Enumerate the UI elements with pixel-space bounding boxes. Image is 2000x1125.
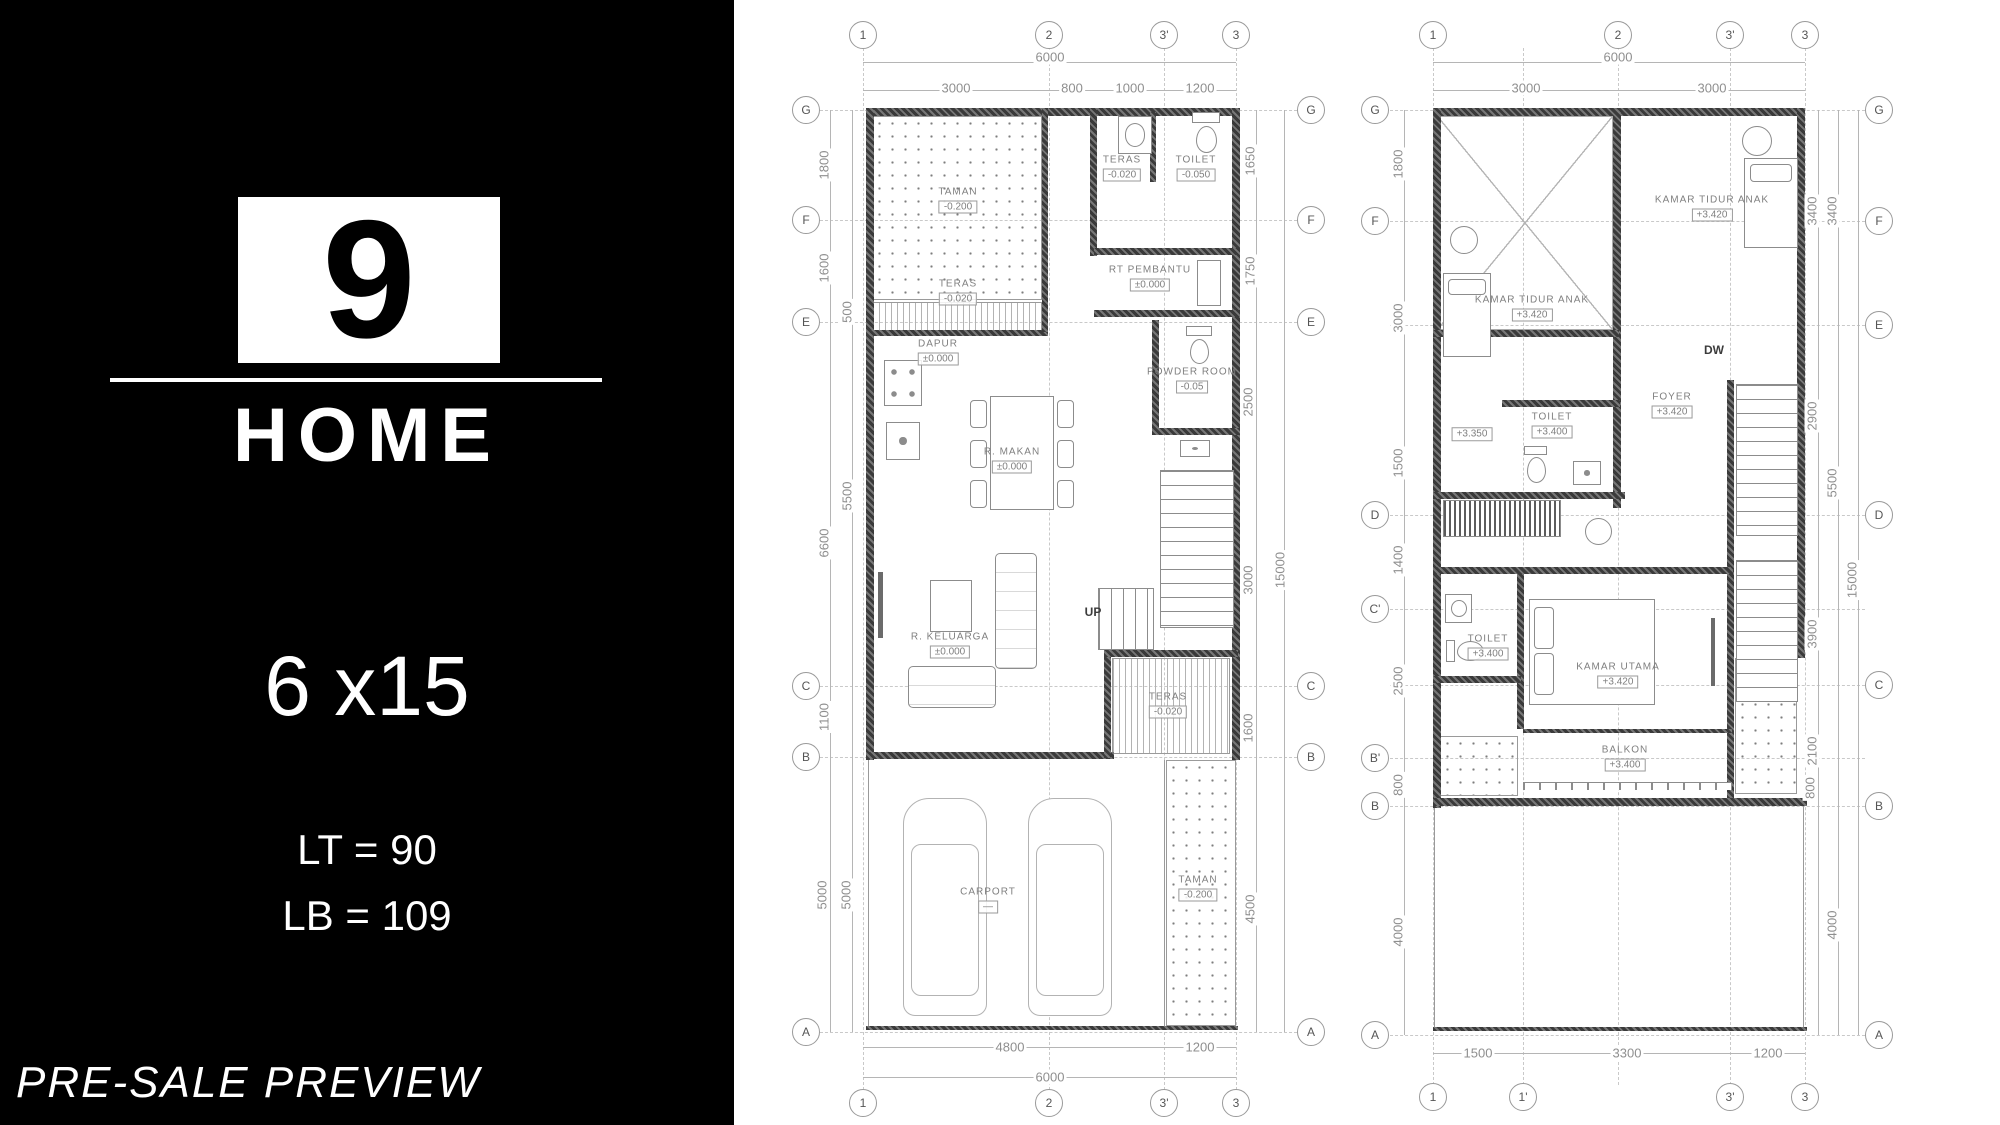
room-level-value: -0.200	[1179, 888, 1217, 902]
grid-bubble: 3'	[1150, 21, 1178, 49]
wall	[1104, 650, 1238, 657]
grid-bubble: A	[1297, 1018, 1325, 1046]
wall	[1042, 108, 1048, 332]
room-level-value: -0.020	[1103, 168, 1141, 182]
room-label: TAMAN-0.200	[938, 187, 977, 214]
dimension-text: 15000	[1273, 550, 1288, 590]
grid-bubble: F	[792, 206, 820, 234]
edge-line	[868, 760, 869, 1028]
dimension-text: 6600	[817, 527, 832, 560]
dimension-text: 800	[1059, 81, 1085, 96]
circle-symbol	[1742, 126, 1772, 156]
dimension-text: 1600	[1241, 712, 1256, 745]
dimension-text: 4000	[1825, 909, 1840, 942]
grid-bubble: D	[1361, 501, 1389, 529]
dimension-text: 5500	[1825, 467, 1840, 500]
grid-bubble: C	[792, 672, 820, 700]
room-name: DAPUR	[918, 339, 959, 351]
grid-bubble: 1	[1419, 21, 1447, 49]
room-level-value: +3.350	[1452, 427, 1493, 441]
presale-preview-text: PRE-SALE PREVIEW	[16, 1058, 481, 1108]
room-level-value: —	[978, 900, 998, 914]
room-name: RT PEMBANTU	[1109, 265, 1191, 277]
dimension-text: 15000	[1845, 560, 1860, 600]
room-label: CARPORT—	[960, 887, 1016, 914]
dimension-text: 6000	[1034, 1070, 1067, 1085]
grid-bubble: E	[792, 308, 820, 336]
dimension-line	[1838, 110, 1839, 1035]
room-level-value: +3.420	[1598, 675, 1639, 689]
dimension-text: 1400	[1391, 544, 1406, 577]
room-level-value: -0.050	[1177, 168, 1215, 182]
grid-bubble: E	[1865, 311, 1893, 339]
edge-line	[1434, 806, 1435, 1027]
room-label: TERAS-0.020	[939, 279, 977, 306]
chair-symbol	[970, 400, 987, 428]
room-name: FOYER	[1652, 392, 1693, 404]
grid-bubble: B	[1297, 743, 1325, 771]
room-level-value: ±0.000	[918, 352, 959, 366]
annotation-text: DW	[1704, 343, 1724, 357]
tv-symbol	[1711, 618, 1715, 686]
grid-bubble: B	[1361, 792, 1389, 820]
room-name: TERAS	[1103, 155, 1141, 167]
toilet-tank-symbol	[1192, 112, 1220, 123]
grid-bubble: 3'	[1716, 1083, 1744, 1111]
wall	[866, 1026, 1238, 1030]
room-label: BALKON+3.400	[1602, 745, 1649, 772]
dimension-text: 2900	[1805, 400, 1820, 433]
table-symbol	[930, 580, 972, 632]
grid-bubble: A	[792, 1018, 820, 1046]
dimension-text: 2500	[1391, 665, 1406, 698]
sofa-symbol	[995, 553, 1037, 669]
sofa-symbol	[908, 666, 996, 708]
grid-line	[863, 48, 864, 1090]
grid-bubble: 1	[1419, 1083, 1447, 1111]
grid-bubble: B	[792, 743, 820, 771]
grid-bubble: 1	[849, 21, 877, 49]
grid-bubble: 3'	[1150, 1089, 1178, 1117]
wall	[1094, 310, 1240, 317]
room-label: +3.350	[1452, 425, 1493, 441]
dimension-text: 3000	[1241, 564, 1256, 597]
room-label: KAMAR UTAMA+3.420	[1576, 662, 1660, 689]
grid-bubble: 3	[1791, 21, 1819, 49]
room-label: R. KELUARGA±0.000	[911, 632, 989, 659]
dimension-text: 1100	[817, 701, 832, 733]
dimension-text: 1650	[1243, 145, 1258, 178]
dimension-text: 1200	[1184, 81, 1217, 96]
bed-symbol	[1197, 260, 1221, 306]
dimension-text: 3000	[940, 81, 973, 96]
pillow-symbol	[1534, 653, 1554, 695]
lot-size-text: 6 x15	[0, 638, 734, 735]
room-label: FOYER+3.420	[1652, 392, 1693, 419]
dimension-line	[863, 1047, 1236, 1048]
room-name: TOILET	[1468, 634, 1509, 646]
wall	[1433, 676, 1521, 683]
dimension-text: 3900	[1805, 618, 1820, 651]
room-level-value: ±0.000	[930, 645, 971, 659]
room-level-value: +3.420	[1692, 208, 1733, 222]
dimension-text: 2100	[1805, 735, 1820, 768]
dimension-text: 5000	[815, 879, 830, 912]
room-level-value: -0.200	[939, 200, 977, 214]
grid-bubble: G	[792, 96, 820, 124]
pillow-symbol	[1750, 164, 1792, 182]
dimension-text: 1500	[1391, 447, 1406, 480]
wall	[1613, 108, 1621, 508]
grid-bubble: A	[1865, 1021, 1893, 1049]
wall	[866, 330, 1048, 336]
wall	[1797, 108, 1805, 658]
chair-symbol	[1057, 480, 1074, 508]
presale-floorplan-sheet: 9 HOME 6 x15 LT = 90 LB = 109 PRE-SALE P…	[0, 0, 2000, 1125]
chair-symbol	[1057, 440, 1074, 468]
room-name: TERAS	[1149, 692, 1187, 704]
annotation-text: UP	[1085, 605, 1102, 619]
room-name: TOILET	[1532, 412, 1573, 424]
sink-symbol	[1573, 461, 1601, 485]
grid-bubble: C	[1297, 672, 1325, 700]
room-label: RT PEMBANTU±0.000	[1109, 265, 1191, 292]
grid-bubble: 1	[849, 1089, 877, 1117]
room-label: KAMAR TIDUR ANAK+3.420	[1655, 195, 1769, 222]
dimension-text: 1200	[1184, 1040, 1217, 1055]
wall	[1090, 108, 1097, 256]
stairs-h-symbol	[1160, 470, 1234, 628]
grid-bubble: 2	[1035, 21, 1063, 49]
dimension-text: 1800	[817, 149, 832, 182]
wall	[1433, 108, 1441, 808]
dimension-text: 4800	[994, 1040, 1027, 1055]
dimension-text: 3400	[1825, 195, 1840, 228]
room-name: R. KELUARGA	[911, 632, 989, 644]
room-name: CARPORT	[960, 887, 1016, 899]
rail-symbol	[1523, 782, 1732, 790]
grid-bubble: 3	[1222, 1089, 1250, 1117]
dimension-text: 3400	[1805, 195, 1820, 228]
room-name: TAMAN	[938, 187, 977, 199]
wall	[1094, 248, 1240, 255]
grid-line	[820, 1032, 1297, 1033]
wall	[1433, 492, 1625, 499]
room-name: KAMAR TIDUR ANAK	[1475, 295, 1589, 307]
grid-bubble: F	[1865, 207, 1893, 235]
room-name: KAMAR UTAMA	[1576, 662, 1660, 674]
grid-bubble: F	[1361, 207, 1389, 235]
toilet-tank-symbol	[1186, 326, 1212, 336]
dimension-text: 5000	[839, 879, 854, 912]
grid-bubble: F	[1297, 206, 1325, 234]
grid-bubble: A	[1361, 1021, 1389, 1049]
stairs-h-symbol	[1736, 560, 1798, 702]
logo-number: 9	[322, 204, 415, 355]
toilet-tank-symbol	[1524, 446, 1547, 455]
grid-bubble: 1'	[1509, 1083, 1537, 1111]
edge-line	[1803, 806, 1804, 1027]
dimension-text: 1800	[1391, 148, 1406, 181]
grid-bubble: 3	[1791, 1083, 1819, 1111]
dimension-text: 5500	[840, 480, 855, 513]
room-level-value: +3.420	[1512, 308, 1553, 322]
room-name: TAMAN	[1178, 875, 1217, 887]
room-name: BALKON	[1602, 745, 1649, 757]
toilet-bowl-symbol	[1190, 339, 1209, 364]
sink-symbol	[1180, 440, 1210, 457]
washer-symbol	[1445, 594, 1472, 623]
dimension-text: 3000	[1391, 302, 1406, 335]
room-label: TOILET+3.400	[1532, 412, 1573, 439]
room-label: TAMAN-0.200	[1178, 875, 1217, 902]
room-level-value: +3.400	[1605, 758, 1646, 772]
wall	[866, 108, 1240, 116]
dimension-text: 1200	[1752, 1046, 1785, 1061]
room-name: TOILET	[1176, 155, 1217, 167]
stripesV-area	[872, 302, 1042, 332]
edge-line	[1164, 760, 1165, 1028]
grid-bubble: D	[1865, 501, 1893, 529]
room-name: TERAS	[939, 279, 977, 291]
dimension-text: 1600	[817, 252, 832, 285]
room-level-value: +3.400	[1532, 425, 1573, 439]
dimension-line	[830, 110, 831, 1032]
logo-word: HOME	[0, 392, 734, 479]
wardrobe-symbol	[1443, 500, 1561, 537]
wall	[1152, 428, 1240, 435]
dimension-text: 500	[840, 299, 855, 325]
dimension-text: 3000	[1696, 81, 1729, 96]
room-level-value: +3.400	[1468, 647, 1509, 661]
tv-symbol	[878, 572, 883, 638]
circle-symbol	[1450, 226, 1478, 254]
circle-symbol	[1585, 518, 1612, 545]
dimension-line	[1433, 90, 1805, 91]
room-name: POWDER ROOM	[1147, 367, 1237, 379]
grid-bubble: E	[1297, 308, 1325, 336]
room-level-value: -0.020	[939, 292, 977, 306]
room-label: TOILET-0.050	[1176, 155, 1217, 182]
room-label: DAPUR±0.000	[918, 339, 959, 366]
grid-bubble: C'	[1361, 595, 1389, 623]
grid-bubble: B'	[1361, 744, 1389, 772]
grid-bubble: G	[1865, 96, 1893, 124]
dimension-text: 3300	[1611, 1046, 1644, 1061]
room-level-value: -0.020	[1149, 705, 1187, 719]
room-label: R. MAKAN±0.000	[984, 447, 1040, 474]
grid-bubble: 2	[1035, 1089, 1063, 1117]
wall	[1433, 567, 1733, 574]
toilet-bowl-symbol	[1196, 126, 1217, 153]
room-level-value: ±0.000	[1130, 278, 1171, 292]
wall	[1433, 1027, 1807, 1031]
dimension-line	[863, 90, 1236, 91]
wall	[1433, 798, 1807, 806]
room-label: KAMAR TIDUR ANAK+3.420	[1475, 295, 1589, 322]
dimension-text: 3000	[1510, 81, 1543, 96]
grid-bubble: C	[1865, 671, 1893, 699]
dimension-text: 4500	[1243, 893, 1258, 926]
wall	[1523, 729, 1732, 733]
pillow-symbol	[1448, 279, 1486, 295]
toilet-tank-symbol	[1446, 640, 1455, 662]
grid-bubble: 3	[1222, 21, 1250, 49]
dimension-text: 800	[1391, 772, 1406, 798]
grid-bubble: 2	[1604, 21, 1632, 49]
chair-symbol	[970, 480, 987, 508]
room-label: TOILET+3.400	[1468, 634, 1509, 661]
car-symbol	[1028, 798, 1112, 1016]
toilet-bowl-symbol	[1527, 457, 1546, 483]
room-level-value: ±0.000	[992, 460, 1033, 474]
land-area-text: LT = 90	[0, 826, 734, 874]
grid-bubble: 3'	[1716, 21, 1744, 49]
wall	[866, 752, 1114, 759]
room-name: R. MAKAN	[984, 447, 1040, 459]
room-label: POWDER ROOM-0.05	[1147, 367, 1237, 394]
dimension-text: 1000	[1114, 81, 1147, 96]
grid-bubble: G	[1297, 96, 1325, 124]
dimension-text: 6000	[1034, 50, 1067, 65]
grid-bubble: G	[1361, 96, 1389, 124]
room-label: TERAS-0.020	[1103, 155, 1141, 182]
dimension-text: 1750	[1243, 255, 1258, 288]
left-info-panel: 9 HOME 6 x15 LT = 90 LB = 109 PRE-SALE P…	[0, 0, 734, 1125]
stairs-h-symbol	[1736, 384, 1798, 536]
room-level-value: -0.05	[1176, 380, 1209, 394]
dimension-text: 4000	[1391, 916, 1406, 949]
washer-symbol	[1118, 116, 1152, 154]
logo-box: 9	[238, 197, 500, 363]
room-level-value: +3.420	[1652, 405, 1693, 419]
room-name: KAMAR TIDUR ANAK	[1655, 195, 1769, 207]
logo-divider	[110, 378, 602, 382]
sink-symbol	[886, 422, 920, 460]
wall	[1727, 380, 1734, 806]
grid-line	[1390, 1035, 1865, 1036]
dimension-line	[1818, 110, 1819, 1035]
dimension-text: 1500	[1462, 1046, 1495, 1061]
grid-line	[1390, 806, 1865, 807]
wall	[1502, 400, 1620, 407]
wall	[1104, 650, 1111, 758]
stairs-v-symbol	[1098, 588, 1154, 650]
grid-bubble: B	[1865, 792, 1893, 820]
dimension-text: 6000	[1602, 50, 1635, 65]
dimension-text: 800	[1803, 775, 1818, 801]
wall	[1517, 574, 1524, 729]
stove-symbol	[884, 360, 922, 406]
chair-symbol	[1057, 400, 1074, 428]
building-area-text: LB = 109	[0, 892, 734, 940]
room-label: TERAS-0.020	[1149, 692, 1187, 719]
dots-area	[1440, 736, 1518, 796]
dimension-text: 2500	[1241, 386, 1256, 419]
wall	[866, 108, 874, 760]
pillow-symbol	[1534, 607, 1554, 649]
